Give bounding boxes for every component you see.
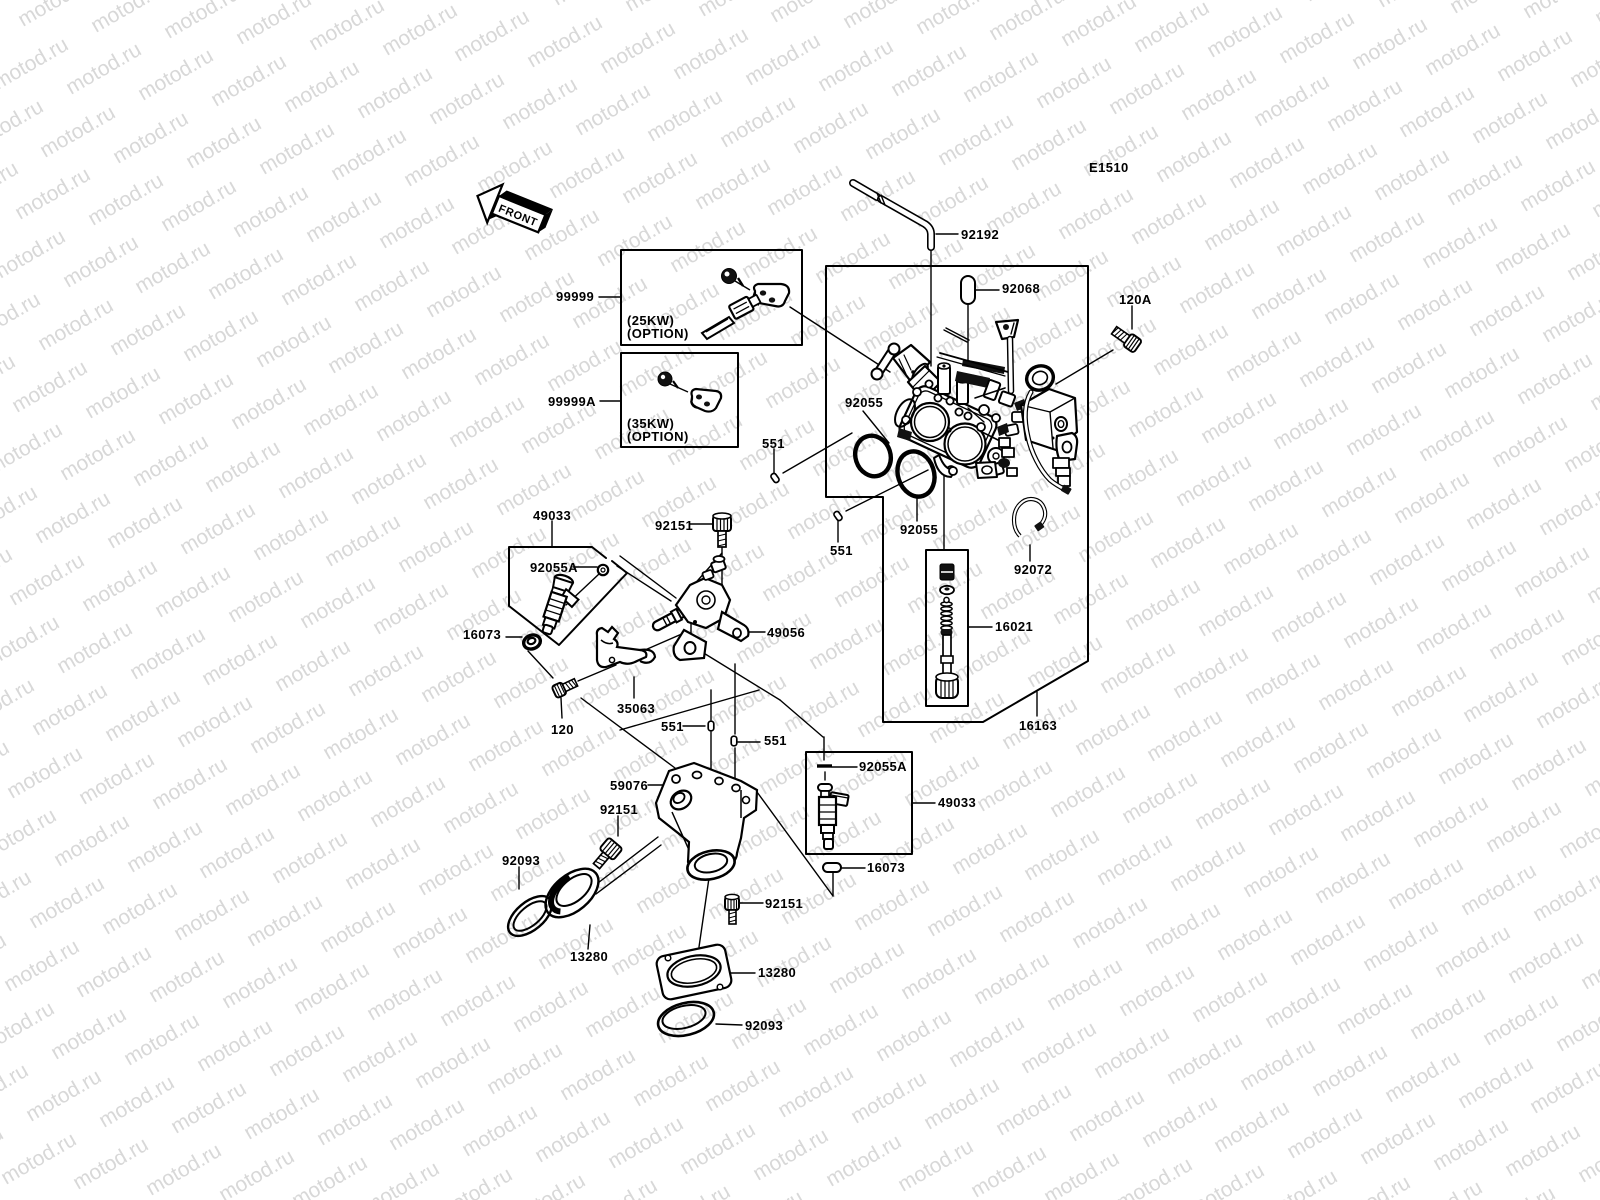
svg-text:92151: 92151 bbox=[765, 896, 803, 911]
svg-text:92055: 92055 bbox=[845, 395, 883, 410]
svg-text:16073: 16073 bbox=[463, 627, 501, 642]
svg-text:92192: 92192 bbox=[961, 227, 999, 242]
svg-text:(OPTION): (OPTION) bbox=[627, 326, 689, 341]
svg-text:92055A: 92055A bbox=[859, 759, 907, 774]
svg-text:16163: 16163 bbox=[1019, 718, 1057, 733]
svg-text:92055: 92055 bbox=[900, 522, 938, 537]
svg-text:E1510: E1510 bbox=[1089, 160, 1129, 175]
svg-text:92093: 92093 bbox=[502, 853, 540, 868]
svg-text:92068: 92068 bbox=[1002, 281, 1040, 296]
svg-text:120A: 120A bbox=[1119, 292, 1152, 307]
svg-text:92151: 92151 bbox=[655, 518, 693, 533]
svg-text:92072: 92072 bbox=[1014, 562, 1052, 577]
svg-text:16021: 16021 bbox=[995, 619, 1033, 634]
svg-text:59076: 59076 bbox=[610, 778, 648, 793]
svg-text:92151: 92151 bbox=[600, 802, 638, 817]
svg-text:49033: 49033 bbox=[533, 508, 571, 523]
svg-text:35063: 35063 bbox=[617, 701, 655, 716]
svg-text:49033: 49033 bbox=[938, 795, 976, 810]
svg-text:99999A: 99999A bbox=[548, 394, 596, 409]
svg-text:551: 551 bbox=[661, 719, 684, 734]
svg-text:49056: 49056 bbox=[767, 625, 805, 640]
svg-text:(OPTION): (OPTION) bbox=[627, 429, 689, 444]
svg-text:92055A: 92055A bbox=[530, 560, 578, 575]
svg-text:99999: 99999 bbox=[556, 289, 594, 304]
svg-text:551: 551 bbox=[830, 543, 853, 558]
svg-text:120: 120 bbox=[551, 722, 574, 737]
svg-text:551: 551 bbox=[762, 436, 785, 451]
svg-text:551: 551 bbox=[764, 733, 787, 748]
svg-text:16073: 16073 bbox=[867, 860, 905, 875]
svg-text:92093: 92093 bbox=[745, 1018, 783, 1033]
svg-text:13280: 13280 bbox=[570, 949, 608, 964]
svg-text:13280: 13280 bbox=[758, 965, 796, 980]
